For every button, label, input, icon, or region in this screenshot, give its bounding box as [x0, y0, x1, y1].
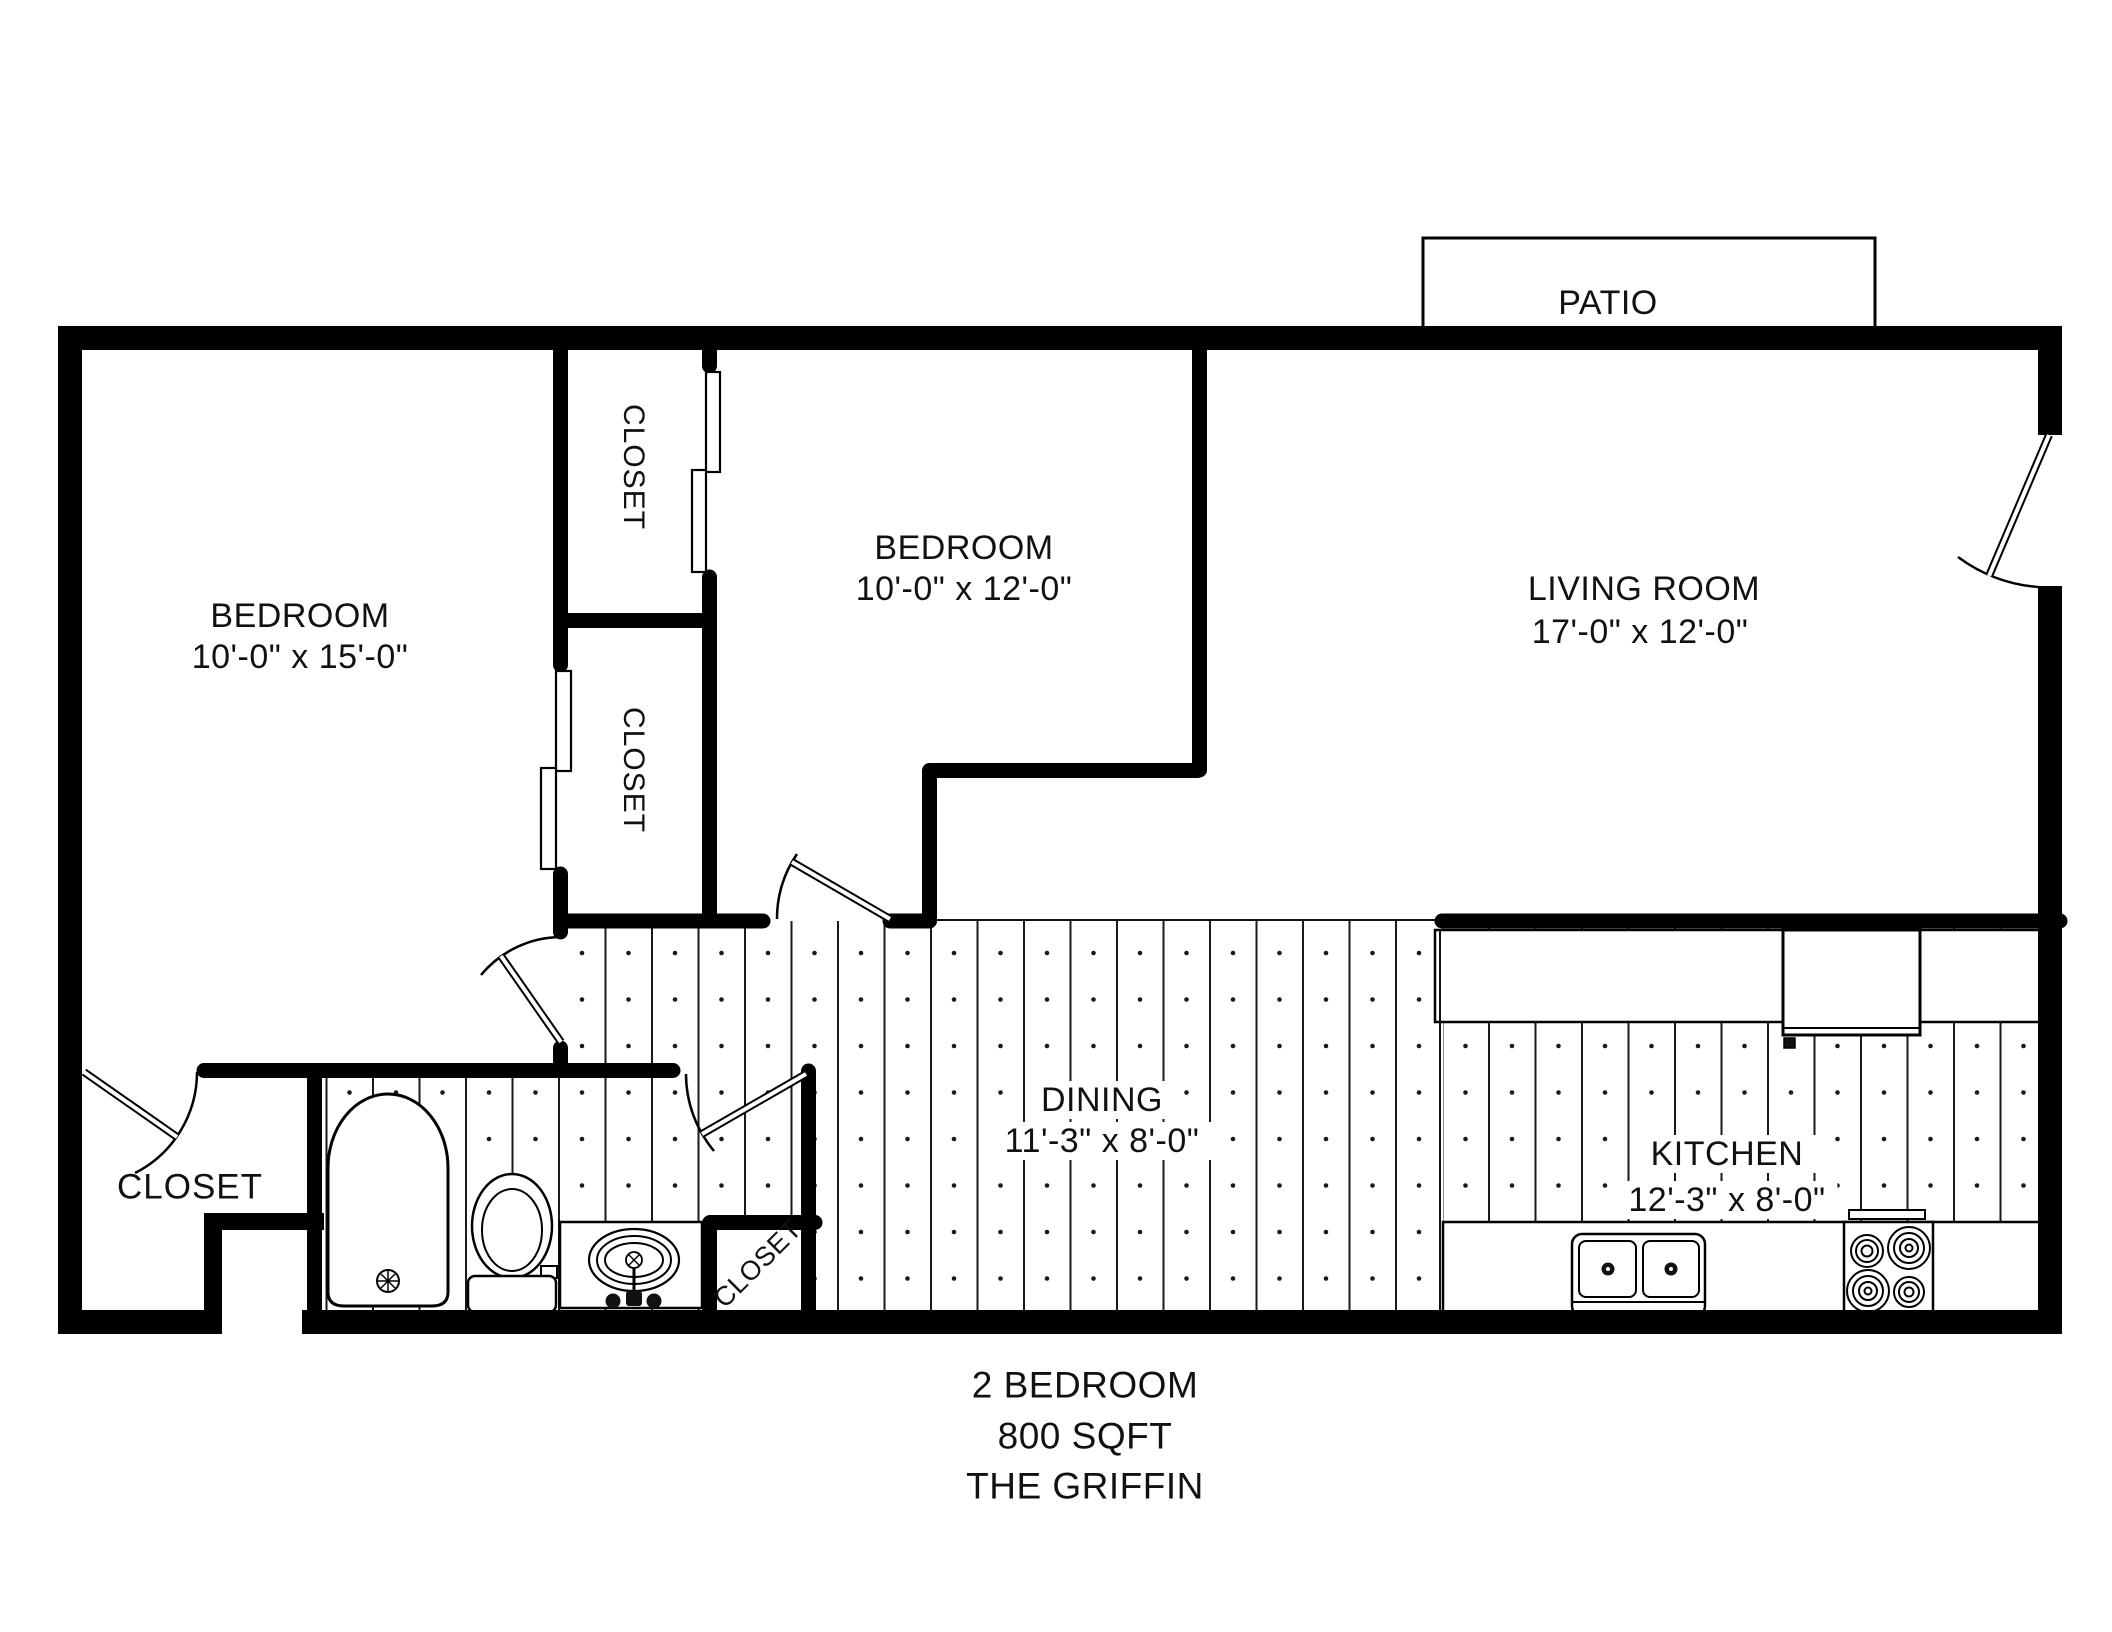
entry-closet-door-leaf-inner [84, 1072, 177, 1137]
patio-label: PATIO [1558, 286, 1657, 320]
bedroom2-door-leaf-inner [792, 862, 890, 919]
living-room-dimensions: 17'-0" x 12'-0" [1532, 615, 1749, 649]
dining-label: DINING [1029, 1081, 1175, 1119]
footer-sqft: 800 SQFT [998, 1418, 1173, 1455]
footer-plan-name: THE GRIFFIN [966, 1468, 1204, 1505]
entry-closet-door-arc [135, 1072, 197, 1173]
living-room-label: LIVING ROOM [1528, 572, 1760, 606]
bedroom1-dimensions: 10'-0" x 15'-0" [192, 640, 409, 674]
wall-exterior-bottom-left [58, 1310, 222, 1334]
refrigerator-handle [1784, 1038, 1795, 1048]
bedroom2-dimensions: 10'-0" x 12'-0" [856, 572, 1073, 606]
sink-drain-left-dot [1606, 1267, 1610, 1271]
toilet-seat [482, 1189, 542, 1271]
kitchen-counter-top [1435, 930, 2040, 1022]
wall-exterior-right-lower [2038, 586, 2062, 1334]
refrigerator [1783, 930, 1920, 1035]
stove-handle [1849, 1210, 1925, 1219]
footer-unit-type: 2 BEDROOM [972, 1367, 1199, 1404]
patio-door-leaf-inner [1989, 435, 2049, 576]
kitchen-dimensions: 12'-3" x 8'-0" [1616, 1181, 1837, 1219]
closet-top-slider-panel2 [692, 470, 706, 572]
wall-exterior-right-upper [2038, 326, 2062, 435]
kitchen-counter-bottom [1443, 1222, 2040, 1312]
closet-mid-slider-panel2 [541, 768, 556, 869]
wall-step-horizontal [204, 1213, 324, 1230]
bedroom1-door-leaf-inner [501, 956, 561, 1042]
bedroom1-door-arc [481, 937, 561, 975]
closet-top-label: CLOSET [618, 404, 648, 530]
faucet-handle-right [647, 1294, 662, 1309]
wall-exterior-bottom [302, 1310, 2062, 1334]
wall-exterior-left [58, 326, 82, 1334]
kitchen-label: KITCHEN [1639, 1135, 1816, 1173]
bedroom2-label: BEDROOM [874, 531, 1053, 565]
dining-dimensions: 11'-3" x 8'-0" [993, 1122, 1212, 1160]
faucet-handle-left [606, 1294, 621, 1309]
sink-drain-right-dot [1669, 1267, 1673, 1271]
bedroom1-label: BEDROOM [210, 599, 389, 633]
closet-middle-label: CLOSET [618, 707, 648, 833]
closet-top-slider-panel1 [706, 372, 720, 472]
floor-plan-page: PATIO BEDROOM 10'-0" x 15'-0" CLOSET CLO… [0, 0, 2112, 1632]
entry-closet-label: CLOSET [117, 1170, 263, 1205]
wall-step-vertical [204, 1213, 222, 1334]
faucet-spout [626, 1291, 642, 1306]
closet-mid-slider-panel1 [556, 671, 571, 771]
wall-exterior-top [58, 326, 2062, 350]
toilet-tank [468, 1276, 556, 1312]
